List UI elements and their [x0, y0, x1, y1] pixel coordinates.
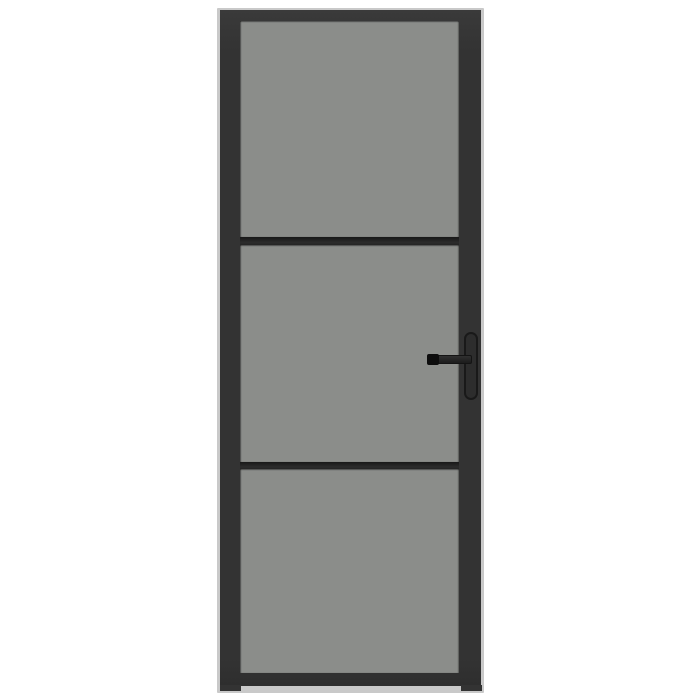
muntin-bar-lower [240, 462, 459, 469]
door-foot-right [461, 685, 482, 691]
glass-panel-top [240, 21, 459, 237]
glass-panel-middle [240, 245, 459, 462]
glass-panel-bottom [240, 469, 459, 673]
muntin-bar-upper [240, 237, 459, 245]
door-foot-left [220, 685, 241, 691]
door-edge-highlight [217, 8, 484, 693]
handle-backplate [464, 332, 478, 400]
handle-lever-tip-icon [427, 354, 439, 365]
glass-area [240, 21, 459, 673]
door-frame [220, 10, 481, 686]
page-background [0, 0, 700, 700]
